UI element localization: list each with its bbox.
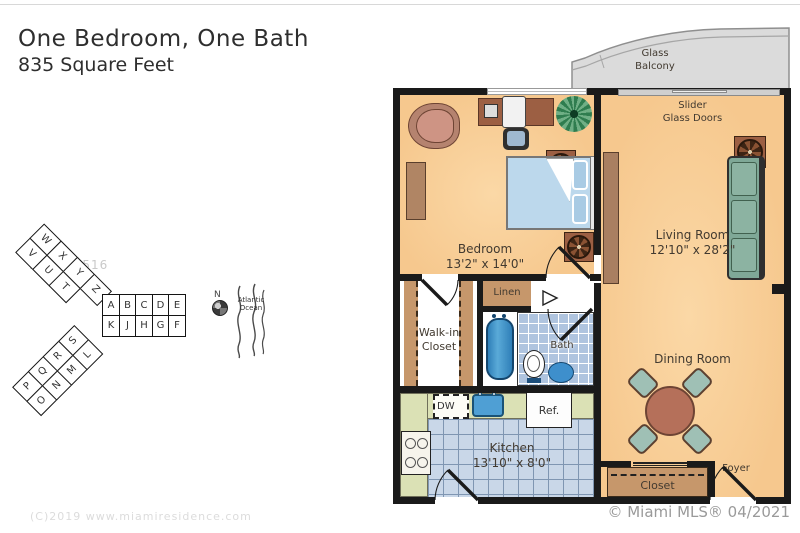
unit-cell: B xyxy=(119,294,137,316)
unit-cell: C xyxy=(135,294,153,316)
page-subtitle: 835 Square Feet xyxy=(18,54,174,76)
unit-cell: D xyxy=(152,294,170,316)
compass-north-icon xyxy=(212,300,228,316)
unit-cell: J xyxy=(119,315,137,337)
unit-cell: E xyxy=(168,294,186,316)
unit-cell: G xyxy=(152,315,170,337)
building-wing-upper: W X Y Z V U T xyxy=(14,223,114,323)
wing-right-bottom-row: K J H G F xyxy=(102,315,185,336)
unit-cell: F xyxy=(168,315,186,337)
wing-right-top-row: A B C D E xyxy=(102,294,185,315)
building-wing-right: A B C D E K J H G F xyxy=(102,294,185,335)
unit-cell: A xyxy=(102,294,120,316)
site-key-map: A11030516 W X Y Z V U T P Q R S xyxy=(8,238,278,408)
door-swings xyxy=(393,88,791,504)
balcony-label: Glass Balcony xyxy=(600,48,710,73)
unit-cell: K xyxy=(102,315,120,337)
building-wing-lower: P Q R S O N M L xyxy=(12,322,107,417)
ocean-label: Atlantic Ocean xyxy=(233,296,269,313)
mls-watermark: © Miami MLS® 04/2021 xyxy=(495,503,790,521)
compass-north-label: N xyxy=(214,290,221,300)
unit-cell: H xyxy=(135,315,153,337)
top-border-line xyxy=(0,4,800,5)
page-title: One Bedroom, One Bath xyxy=(18,26,309,52)
site-copyright-watermark: (C)2019 www.miamiresidence.com xyxy=(30,510,252,523)
ocean-waves-icon xyxy=(230,282,270,360)
floor-plan-page: One Bedroom, One Bath 835 Square Feet A1… xyxy=(0,0,800,533)
linen-arrow xyxy=(543,291,557,305)
